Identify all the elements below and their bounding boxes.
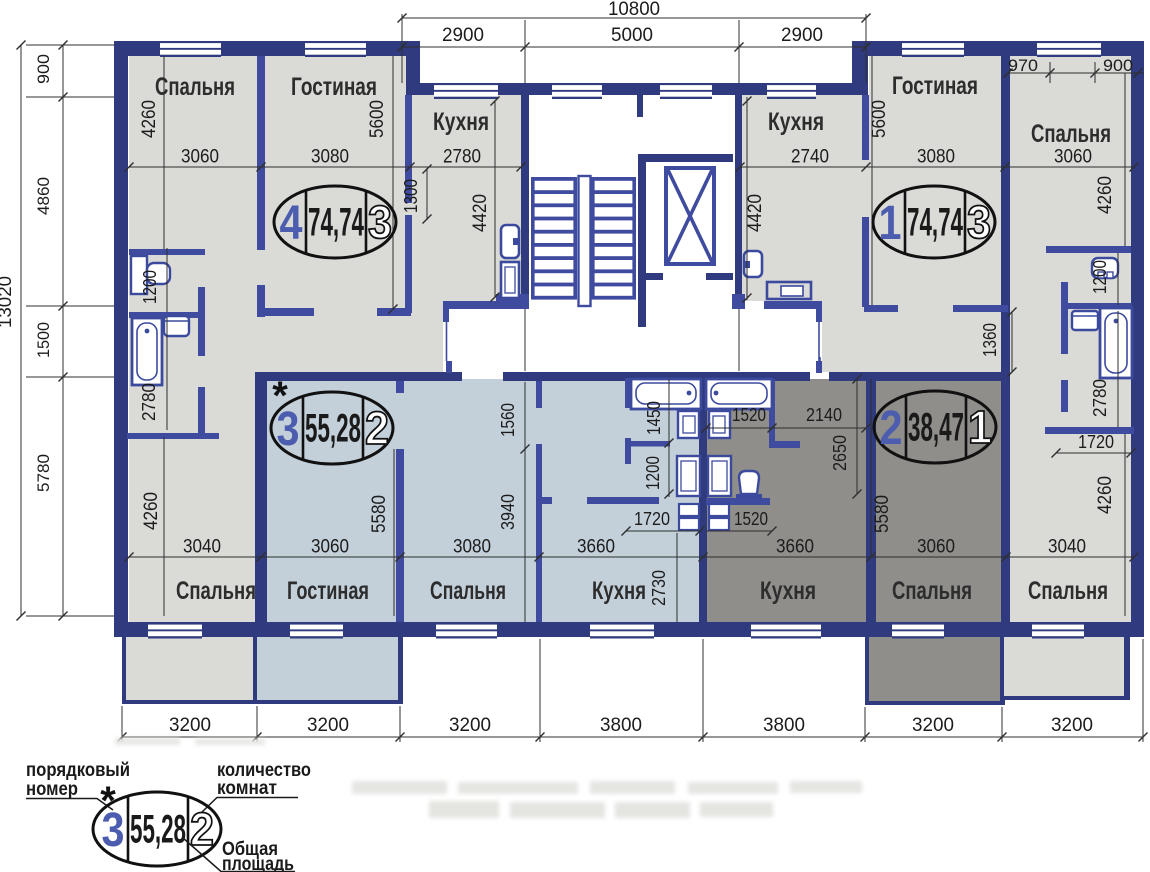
svg-text:Спальня: Спальня xyxy=(1028,577,1108,605)
svg-text:1: 1 xyxy=(879,197,902,250)
svg-text:Кухня: Кухня xyxy=(768,108,824,136)
svg-text:3: 3 xyxy=(368,196,392,248)
svg-text:2: 2 xyxy=(365,402,389,454)
svg-text:900: 900 xyxy=(34,54,53,84)
svg-text:комнат: комнат xyxy=(217,778,277,799)
svg-text:Спальня: Спальня xyxy=(155,73,235,101)
svg-text:13020: 13020 xyxy=(0,276,15,328)
svg-text:3: 3 xyxy=(967,196,991,248)
svg-text:4260: 4260 xyxy=(139,100,160,138)
svg-text:2780: 2780 xyxy=(139,383,159,421)
svg-text:Кухня: Кухня xyxy=(592,577,646,605)
svg-text:38,47: 38,47 xyxy=(908,406,964,450)
svg-text:3660: 3660 xyxy=(776,537,814,558)
svg-text:1720: 1720 xyxy=(1078,432,1114,452)
svg-text:1200: 1200 xyxy=(1090,260,1110,294)
svg-text:55,28: 55,28 xyxy=(305,407,361,451)
svg-text:4260: 4260 xyxy=(1095,476,1116,514)
svg-text:Спальня: Спальня xyxy=(430,577,506,605)
svg-text:970: 970 xyxy=(1008,56,1038,75)
svg-text:3660: 3660 xyxy=(577,537,615,558)
svg-text:3940: 3940 xyxy=(498,494,518,530)
svg-text:1560: 1560 xyxy=(498,403,518,437)
svg-text:Кухня: Кухня xyxy=(760,577,816,605)
svg-text:2900: 2900 xyxy=(442,25,484,46)
svg-text:4260: 4260 xyxy=(1095,176,1116,214)
svg-text:3800: 3800 xyxy=(600,715,642,736)
svg-text:3200: 3200 xyxy=(307,715,349,736)
svg-text:*: * xyxy=(272,374,288,418)
svg-text:3080: 3080 xyxy=(917,147,955,168)
svg-text:900: 900 xyxy=(1103,56,1133,75)
svg-text:Кухня: Кухня xyxy=(433,108,489,136)
svg-text:3800: 3800 xyxy=(763,715,805,736)
svg-text:74,74: 74,74 xyxy=(308,201,364,245)
svg-text:1360: 1360 xyxy=(980,323,1000,357)
svg-text:2650: 2650 xyxy=(830,435,850,471)
svg-text:5600: 5600 xyxy=(367,100,388,138)
svg-text:1300: 1300 xyxy=(401,179,421,213)
svg-text:3060: 3060 xyxy=(181,147,219,168)
svg-text:2900: 2900 xyxy=(781,25,823,46)
svg-text:Гостиная: Гостиная xyxy=(291,73,377,101)
svg-text:3200: 3200 xyxy=(169,715,211,736)
svg-text:3080: 3080 xyxy=(453,537,491,558)
svg-text:10800: 10800 xyxy=(608,0,660,20)
svg-text:1: 1 xyxy=(968,401,992,453)
svg-text:Гостиная: Гостиная xyxy=(287,577,369,605)
svg-text:5000: 5000 xyxy=(611,25,653,46)
svg-text:74,74: 74,74 xyxy=(907,201,963,245)
svg-text:55,28: 55,28 xyxy=(130,808,186,852)
svg-text:1200: 1200 xyxy=(643,456,663,490)
svg-text:4420: 4420 xyxy=(470,194,491,232)
svg-text:4860: 4860 xyxy=(34,177,53,215)
svg-text:Гостиная: Гостиная xyxy=(892,72,978,100)
svg-text:порядковый: порядковый xyxy=(26,760,130,781)
svg-text:номер: номер xyxy=(26,779,78,800)
svg-text:2140: 2140 xyxy=(806,405,842,425)
svg-text:3060: 3060 xyxy=(917,537,955,558)
svg-text:3200: 3200 xyxy=(1051,715,1093,736)
svg-text:3040: 3040 xyxy=(1048,537,1086,558)
svg-text:1720: 1720 xyxy=(634,509,670,529)
svg-text:Спальня: Спальня xyxy=(1031,120,1111,148)
svg-text:2780: 2780 xyxy=(1090,379,1110,417)
svg-text:4: 4 xyxy=(280,197,303,250)
svg-text:4420: 4420 xyxy=(745,194,766,232)
svg-text:площадь: площадь xyxy=(222,854,294,872)
svg-text:1500: 1500 xyxy=(34,322,53,358)
svg-text:1520: 1520 xyxy=(732,405,766,425)
svg-text:2740: 2740 xyxy=(791,147,829,168)
svg-text:1200: 1200 xyxy=(140,270,160,304)
svg-text:2: 2 xyxy=(880,402,903,455)
svg-text:1520: 1520 xyxy=(734,509,768,529)
svg-text:2730: 2730 xyxy=(649,570,669,606)
svg-text:5780: 5780 xyxy=(34,454,53,492)
svg-text:3080: 3080 xyxy=(311,147,349,168)
svg-text:3040: 3040 xyxy=(183,537,221,558)
svg-text:3: 3 xyxy=(102,804,125,857)
svg-text:Спальня: Спальня xyxy=(892,577,972,605)
svg-text:3060: 3060 xyxy=(1054,147,1092,168)
svg-text:2780: 2780 xyxy=(443,147,481,168)
svg-text:3060: 3060 xyxy=(311,537,349,558)
svg-text:5580: 5580 xyxy=(872,495,893,533)
svg-text:4260: 4260 xyxy=(141,492,162,530)
svg-text:3200: 3200 xyxy=(449,715,491,736)
svg-text:5600: 5600 xyxy=(869,100,890,138)
svg-text:Спальня: Спальня xyxy=(176,577,256,605)
svg-text:1450: 1450 xyxy=(644,401,664,435)
svg-text:5580: 5580 xyxy=(369,495,390,533)
svg-text:3200: 3200 xyxy=(912,715,954,736)
